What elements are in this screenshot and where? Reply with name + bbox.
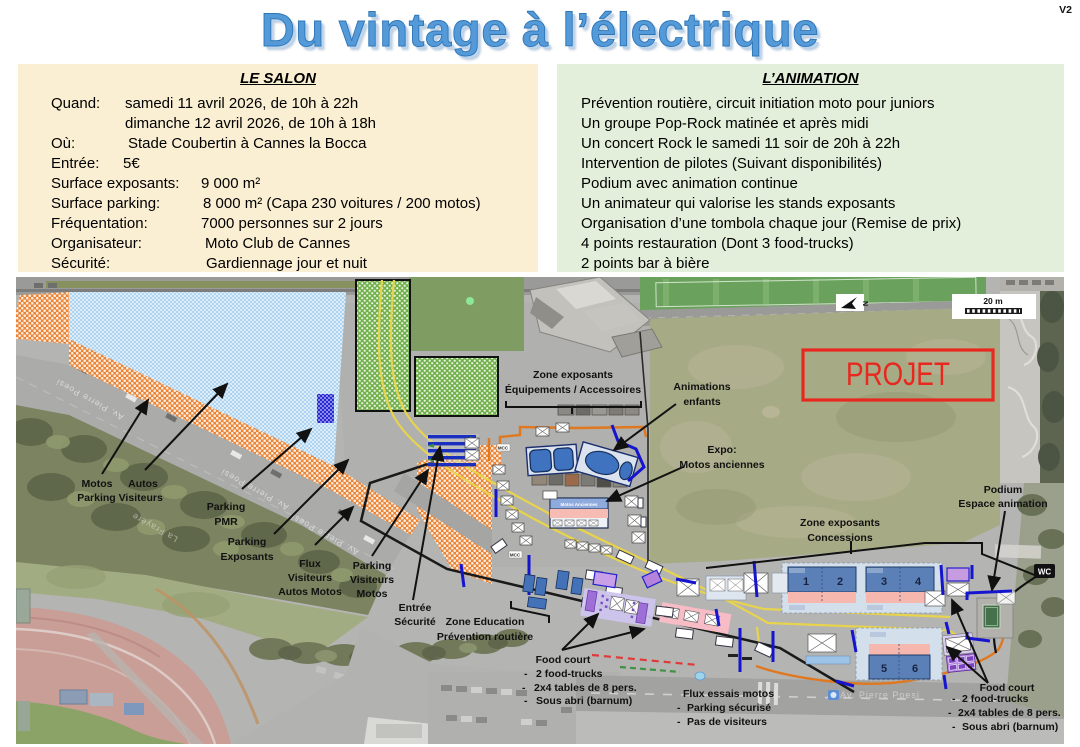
svg-text:-: - (948, 707, 952, 719)
svg-text:Zone Education: Zone Education (446, 616, 525, 628)
svg-text:Parking sécurisé: Parking sécurisé (687, 702, 771, 714)
svg-text:MCC: MCC (510, 553, 521, 558)
svg-text:Entrée: Entrée (399, 602, 432, 614)
svg-text:Podium: Podium (984, 484, 1023, 496)
svg-text:enfants: enfants (683, 396, 721, 408)
svg-text:Motos anciennes: Motos anciennes (679, 459, 764, 471)
svg-text:Sous abri (barnum): Sous abri (barnum) (536, 695, 632, 707)
svg-text:Motos Anciennes: Motos Anciennes (560, 502, 598, 507)
svg-text:3: 3 (881, 576, 887, 588)
svg-text:2x4 tables de 8 pers.: 2x4 tables de 8 pers. (958, 707, 1061, 719)
svg-text:4: 4 (915, 576, 922, 588)
svg-text:6: 6 (912, 663, 918, 675)
svg-text:Prévention routière: Prévention routière (437, 631, 533, 643)
svg-text:Food court: Food court (536, 654, 591, 666)
svg-text:Autos: Autos (128, 478, 158, 490)
svg-text:PROJET: PROJET (846, 356, 950, 392)
svg-text:MCC: MCC (498, 446, 509, 451)
svg-text:Sous abri (barnum): Sous abri (barnum) (962, 721, 1058, 733)
svg-text:Équipements / Accessoires: Équipements / Accessoires (505, 383, 641, 396)
svg-text:-: - (677, 702, 681, 714)
svg-text:2x4 tables de 8 pers.: 2x4 tables de 8 pers. (534, 682, 637, 694)
svg-text:WC: WC (1038, 568, 1052, 577)
svg-text:1: 1 (803, 576, 809, 588)
svg-text:Expo:: Expo: (707, 444, 736, 456)
svg-text:Animations: Animations (673, 381, 730, 393)
svg-text:-: - (952, 721, 956, 733)
svg-text:Motos: Motos (357, 588, 388, 600)
svg-text:Parking: Parking (353, 560, 392, 572)
svg-text:-: - (677, 716, 681, 728)
svg-text:Motos: Motos (82, 478, 113, 490)
svg-text:Espace animation: Espace animation (958, 498, 1047, 510)
svg-text:Parking: Parking (207, 501, 246, 513)
svg-text:-: - (524, 695, 528, 707)
svg-text:N: N (861, 301, 868, 306)
svg-text:20 m: 20 m (983, 296, 1003, 306)
svg-text:2 food-trucks: 2 food-trucks (962, 693, 1029, 705)
svg-text:Visiteurs: Visiteurs (350, 574, 394, 586)
svg-text:-: - (952, 693, 956, 705)
svg-text:Av. Pierre Poesi: Av. Pierre Poesi (840, 690, 920, 700)
svg-text:Zone exposants: Zone exposants (800, 517, 880, 529)
svg-text:Visiteurs: Visiteurs (288, 572, 332, 584)
svg-text:Parking Visiteurs: Parking Visiteurs (77, 492, 163, 504)
svg-text:Sécurité: Sécurité (394, 616, 436, 628)
svg-text:Zone exposants: Zone exposants (533, 369, 613, 381)
svg-text:5: 5 (881, 663, 887, 675)
svg-text:Pas de visiteurs: Pas de visiteurs (687, 716, 767, 728)
svg-text:Autos Motos: Autos Motos (278, 586, 342, 598)
svg-text:PMR: PMR (214, 516, 238, 528)
svg-text:Exposants: Exposants (220, 551, 273, 563)
svg-text:Concessions: Concessions (807, 532, 873, 544)
svg-text:Flux: Flux (299, 558, 321, 570)
svg-text:-: - (524, 668, 528, 680)
svg-text:Flux essais motos: Flux essais motos (683, 688, 774, 700)
svg-text:2 food-trucks: 2 food-trucks (536, 668, 603, 680)
svg-text:-: - (522, 682, 526, 694)
svg-text:2: 2 (837, 576, 843, 588)
svg-text:Parking: Parking (228, 536, 267, 548)
